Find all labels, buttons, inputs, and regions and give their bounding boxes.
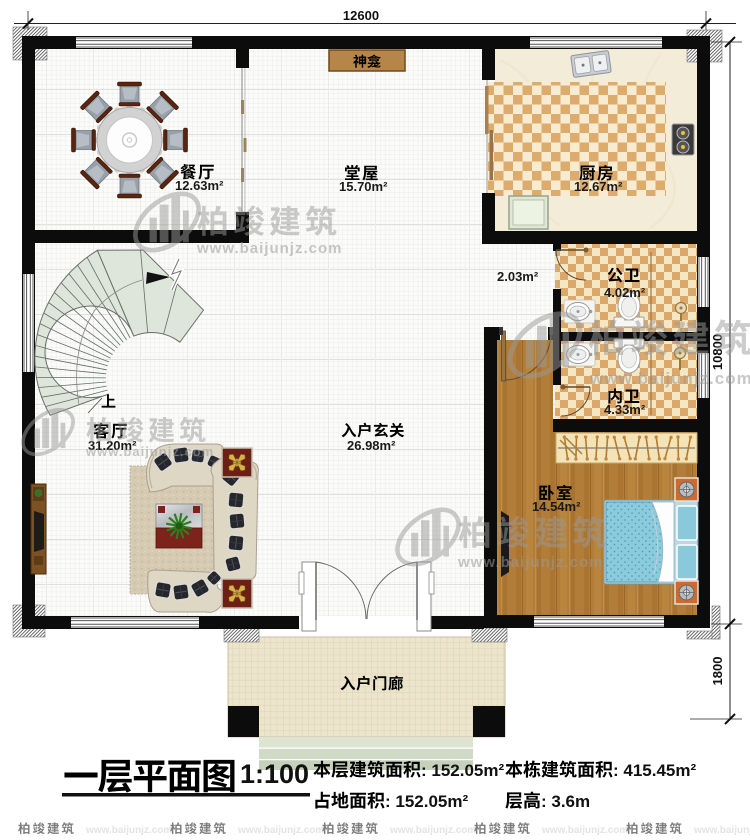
svg-text:1800: 1800 — [710, 657, 725, 686]
svg-text:4.33m²: 4.33m² — [604, 402, 646, 417]
svg-text:www.baijunjz.com: www.baijunjz.com — [693, 825, 750, 836]
svg-text:1:100: 1:100 — [240, 759, 309, 789]
svg-text:www.baijunjz.com: www.baijunjz.com — [457, 554, 603, 571]
svg-text:: 3.6m: : 3.6m — [541, 792, 590, 811]
svg-text:www.baijunjz.com: www.baijunjz.com — [589, 369, 750, 388]
svg-text:www.baijunjz.com: www.baijunjz.com — [85, 825, 172, 836]
svg-text:14.54m²: 14.54m² — [532, 499, 581, 514]
svg-text:15.70m²: 15.70m² — [339, 179, 388, 194]
svg-text:12.63m²: 12.63m² — [175, 178, 224, 193]
svg-text:www.baijunjz.com: www.baijunjz.com — [237, 825, 324, 836]
svg-text:: 152.05m²: : 152.05m² — [421, 761, 504, 780]
svg-text:www.baijunjz.com: www.baijunjz.com — [196, 240, 342, 257]
svg-text:4.02m²: 4.02m² — [604, 285, 646, 300]
svg-text:12.67m²: 12.67m² — [574, 179, 623, 194]
svg-text:www.baijunjz.com: www.baijunjz.com — [85, 444, 214, 459]
svg-text:26.98m²: 26.98m² — [347, 438, 396, 453]
svg-text:: 152.05m²: : 152.05m² — [385, 792, 468, 811]
svg-text:www.baijunjz.com: www.baijunjz.com — [389, 825, 476, 836]
svg-text:: 415.45m²: : 415.45m² — [613, 761, 696, 780]
svg-text:www.baijunjz.com: www.baijunjz.com — [541, 825, 628, 836]
svg-text:12600: 12600 — [343, 8, 379, 23]
svg-text:2.03m²: 2.03m² — [497, 269, 539, 284]
